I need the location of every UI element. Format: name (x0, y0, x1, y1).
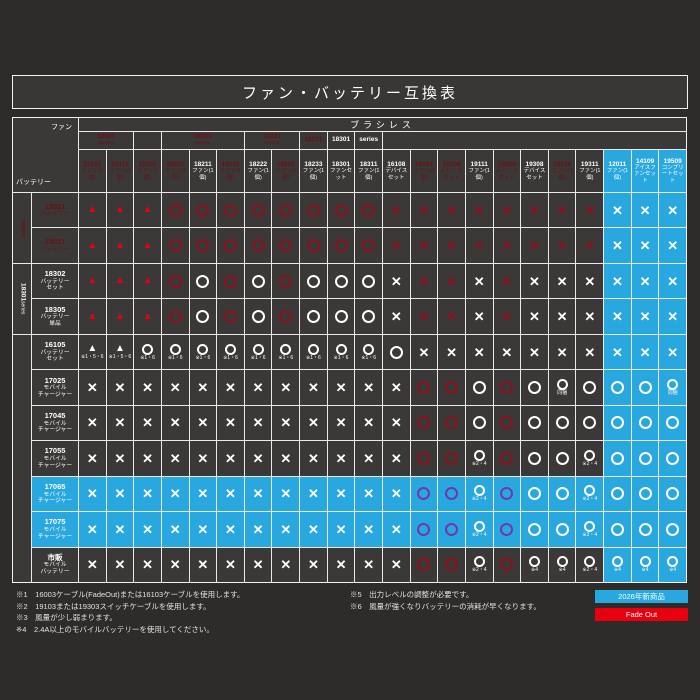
data-cell: ✕ (604, 193, 631, 227)
data-cell: ※2・4 (576, 512, 603, 546)
triangle-mark: ▲ (143, 205, 153, 215)
data-cell (604, 441, 631, 475)
data-cell: ✕ (411, 264, 438, 298)
data-cell: ✕ (438, 299, 465, 333)
cross-mark: ✕ (501, 310, 512, 323)
data-cell: ✕ (328, 512, 355, 546)
row-header-16105: 16105バッテリーセット (32, 335, 78, 369)
data-cell: ✕ (134, 512, 161, 546)
data-cell: ✕ (632, 299, 659, 333)
column-header-19208: 19208デバイスセット (494, 150, 521, 192)
data-cell: ✕ (466, 264, 493, 298)
data-cell (521, 441, 548, 475)
fan-axis-label: ファン (51, 122, 72, 132)
data-cell: ▲ (79, 299, 106, 333)
data-cell: ※4 (604, 548, 631, 582)
data-cell: ✕ (79, 548, 106, 582)
data-cell: ✕ (576, 299, 603, 333)
triangle-mark: ▲ (87, 205, 97, 215)
data-cell: ✕ (494, 335, 521, 369)
circle-mark (308, 344, 319, 355)
data-cell (190, 228, 217, 262)
cross-mark: ✕ (612, 310, 623, 323)
cross-mark: ✕ (253, 487, 264, 500)
data-cell: ✕ (383, 406, 410, 440)
cross-mark: ✕ (584, 346, 595, 359)
data-cell: ※1・6 (245, 335, 272, 369)
data-cell: ✕ (107, 406, 134, 440)
cell-note: ※4 (669, 568, 676, 573)
column-name: ファン(1個) (163, 168, 188, 181)
circle-mark (611, 452, 624, 465)
circle-mark (584, 556, 595, 567)
data-cell: ✕ (355, 441, 382, 475)
data-cell: ✕ (604, 228, 631, 262)
cross-mark: ✕ (391, 239, 402, 252)
triangle-mark: ▲ (87, 312, 97, 322)
column-name: デバイスセット (495, 168, 520, 181)
cross-mark: ✕ (529, 204, 540, 217)
cross-mark: ✕ (170, 381, 181, 394)
column-name: ファン(1個) (135, 168, 160, 181)
triangle-mark: ▲ (115, 205, 125, 215)
data-cell (300, 264, 327, 298)
data-cell: ※1・6 (300, 335, 327, 369)
data-cell (494, 477, 521, 511)
circle-mark (500, 558, 513, 571)
circle-mark (666, 523, 679, 536)
cross-mark: ✕ (197, 523, 208, 536)
cell-note: ※1・6 (140, 356, 155, 361)
data-cell: ✕ (494, 228, 521, 262)
data-cell: ✕ (300, 441, 327, 475)
cross-mark: ✕ (557, 275, 568, 288)
circle-mark (611, 487, 624, 500)
data-cell (190, 299, 217, 333)
circle-mark (363, 344, 374, 355)
cross-mark: ✕ (225, 381, 236, 394)
cross-mark: ✕ (418, 310, 429, 323)
data-cell: ✕ (604, 299, 631, 333)
circle-mark (474, 521, 485, 532)
page-title: ファン・バッテリー互換表 (12, 75, 688, 109)
data-cell: ✕ (79, 477, 106, 511)
data-cell: ✕ (494, 264, 521, 298)
data-cell (549, 441, 576, 475)
data-cell: ※2・4 (576, 477, 603, 511)
circle-mark (473, 381, 486, 394)
data-cell: ※1・6 (190, 335, 217, 369)
cross-mark: ✕ (308, 523, 319, 536)
circle-mark (556, 416, 569, 429)
row-header-市販: 市販モバイルバッテリー (32, 548, 78, 582)
cross-mark: ✕ (391, 381, 402, 394)
column-header-19311: 19311ファン(1個) (576, 150, 603, 192)
cross-mark: ✕ (391, 204, 402, 217)
battery-series-strip: series (13, 193, 31, 263)
cell-note: ※1・6 (168, 356, 183, 361)
data-cell (328, 299, 355, 333)
cross-mark: ✕ (363, 416, 374, 429)
circle-mark (142, 344, 153, 355)
data-cell (494, 441, 521, 475)
data-cell: ✕ (355, 406, 382, 440)
cross-mark: ✕ (87, 416, 98, 429)
circle-mark (335, 275, 348, 288)
cross-mark: ✕ (142, 487, 153, 500)
circle-mark (307, 239, 320, 252)
circle-mark (335, 204, 348, 217)
circle-mark (639, 487, 652, 500)
circle-mark (500, 381, 513, 394)
circle-mark (474, 556, 485, 567)
cell-note: ※1・6 (278, 356, 293, 361)
footnote: ※4 2.4A以上のモバイルバッテリーを使用してください。 (16, 624, 346, 636)
compatibility-table: ファン バッテリー ブラシレス 12001series18201series18… (12, 117, 687, 583)
cross-mark: ✕ (446, 275, 457, 288)
data-cell: ✕ (272, 477, 299, 511)
column-header-18221: 18221ファン(1個) (217, 150, 244, 192)
circle-mark (362, 239, 375, 252)
data-cell (632, 406, 659, 440)
row-code: 12021 (45, 203, 66, 212)
data-cell: ✕ (355, 512, 382, 546)
cross-mark: ✕ (225, 558, 236, 571)
data-cell: ✕ (217, 477, 244, 511)
row-code: 13021 (45, 238, 66, 247)
column-header-18222: 18222ファン(1個) (245, 150, 272, 192)
data-cell: ✕ (632, 228, 659, 262)
circle-mark (390, 346, 403, 359)
data-cell: ✕ (466, 193, 493, 227)
data-cell: ✕ (107, 370, 134, 404)
circle-mark (224, 310, 237, 323)
data-cell: ✕ (328, 548, 355, 582)
circle-mark (307, 275, 320, 288)
row-code: 17055 (45, 447, 66, 456)
data-cell: ✕ (521, 299, 548, 333)
cross-mark: ✕ (253, 558, 264, 571)
circle-mark (224, 239, 237, 252)
data-cell: ✕ (576, 335, 603, 369)
circle-mark (445, 381, 458, 394)
data-cell (190, 193, 217, 227)
cross-mark: ✕ (640, 310, 651, 323)
data-cell: ✕ (576, 264, 603, 298)
cross-mark: ✕ (446, 346, 457, 359)
data-cell: ✕ (355, 548, 382, 582)
footnotes-right: ※5 出力レベルの調整が必要です。※6 風量が強くなりバッテリーの消耗が早くなり… (350, 589, 580, 612)
row-header-17025: 17025モバイルチャージャー (32, 370, 78, 404)
triangle-mark: ▲ (115, 344, 125, 354)
data-cell: ※1・6 (328, 335, 355, 369)
data-cell (245, 193, 272, 227)
cross-mark: ✕ (418, 204, 429, 217)
battery-series-text: series (20, 301, 25, 314)
cell-note: 同梱 (668, 391, 678, 396)
data-cell: ▲ (107, 299, 134, 333)
cross-mark: ✕ (584, 204, 595, 217)
column-header-18311: 18311ファン(1個) (355, 150, 382, 192)
cross-mark: ✕ (363, 487, 374, 500)
data-cell: ※1・6 (272, 335, 299, 369)
cross-mark: ✕ (391, 558, 402, 571)
data-cell: ✕ (79, 512, 106, 546)
circle-mark (529, 556, 540, 567)
data-cell (272, 228, 299, 262)
data-cell (438, 548, 465, 582)
data-cell: ✕ (383, 477, 410, 511)
cross-mark: ✕ (529, 275, 540, 288)
row-code: 17075 (45, 518, 66, 527)
cross-mark: ✕ (640, 204, 651, 217)
circle-mark (556, 452, 569, 465)
circle-mark (666, 416, 679, 429)
data-cell: ▲※1・5・6 (107, 335, 134, 369)
circle-mark (640, 556, 651, 567)
cross-mark: ✕ (253, 416, 264, 429)
battery-series-text: series (19, 219, 26, 238)
circle-mark (307, 310, 320, 323)
cross-mark: ✕ (418, 346, 429, 359)
series-group-label: 12001series (79, 132, 133, 149)
data-cell (217, 228, 244, 262)
column-header-18233: 18233ファン(1個) (300, 150, 327, 192)
data-cell (549, 512, 576, 546)
cross-mark: ✕ (363, 381, 374, 394)
cross-mark: ✕ (280, 487, 291, 500)
data-cell: ▲ (134, 228, 161, 262)
data-cell: ✕ (466, 228, 493, 262)
data-cell (217, 264, 244, 298)
cross-mark: ✕ (114, 452, 125, 465)
series-group-text: series (99, 141, 114, 147)
triangle-mark: ▲ (87, 276, 97, 286)
column-name: ファン(1個) (80, 168, 105, 181)
data-cell (300, 228, 327, 262)
row-name-line: モバイル (43, 527, 66, 534)
data-cell (576, 370, 603, 404)
data-cell: ✕ (79, 441, 106, 475)
page-title-text: ファン・バッテリー互換表 (242, 82, 458, 103)
row-code: 18305 (45, 306, 66, 315)
cross-mark: ✕ (336, 452, 347, 465)
data-cell: ▲ (134, 264, 161, 298)
group-diagonal (383, 132, 686, 149)
data-cell: ✕ (272, 370, 299, 404)
triangle-mark: ▲ (87, 344, 97, 354)
cross-mark: ✕ (418, 239, 429, 252)
data-cell (604, 477, 631, 511)
data-cell: ✕ (659, 335, 686, 369)
cross-mark: ✕ (391, 487, 402, 500)
battery-strip-diagonal (13, 335, 31, 582)
row-name-line: バッテリー (41, 211, 70, 218)
cross-mark: ✕ (114, 523, 125, 536)
circle-mark (445, 523, 458, 536)
cross-mark: ✕ (474, 310, 485, 323)
data-cell: ✕ (521, 228, 548, 262)
cross-mark: ✕ (529, 310, 540, 323)
cross-mark: ✕ (280, 416, 291, 429)
data-cell: ▲ (107, 228, 134, 262)
data-cell: ▲ (79, 228, 106, 262)
data-cell: ✕ (272, 441, 299, 475)
data-cell: ✕ (79, 370, 106, 404)
cross-mark: ✕ (114, 487, 125, 500)
data-cell: ✕ (245, 512, 272, 546)
data-cell (355, 193, 382, 227)
circle-mark (500, 416, 513, 429)
data-cell: 同梱 (549, 370, 576, 404)
cross-mark: ✕ (640, 275, 651, 288)
row-name-line: チャージャー (38, 534, 72, 541)
circle-mark (417, 558, 430, 571)
cell-note: ※2・4 (472, 462, 487, 467)
circle-mark (445, 452, 458, 465)
footnote: ※1 16003ケーブル(FadeOut)または16103ケーブルを使用します。 (16, 589, 346, 601)
data-cell: ✕ (162, 548, 189, 582)
column-name: ファン(1個) (108, 168, 133, 181)
data-cell (438, 441, 465, 475)
column-header-19211: 19211ファン(1個) (549, 150, 576, 192)
column-header-19308: 19308デバイスセット (521, 150, 548, 192)
data-cell: ✕ (328, 406, 355, 440)
cross-mark: ✕ (142, 558, 153, 571)
column-name: コンプリートセット (660, 165, 685, 184)
circle-mark (417, 381, 430, 394)
cell-note: ※1・6 (195, 356, 210, 361)
circle-mark (224, 204, 237, 217)
circle-mark (224, 275, 237, 288)
data-cell: ✕ (549, 228, 576, 262)
circle-mark (169, 239, 182, 252)
circle-mark (639, 381, 652, 394)
triangle-mark: ▲ (87, 241, 97, 251)
cell-note: ※2・4 (582, 568, 597, 573)
data-cell (355, 228, 382, 262)
cross-mark: ✕ (170, 416, 181, 429)
row-name-line: チャージャー (38, 498, 72, 505)
data-cell: ✕ (272, 548, 299, 582)
data-cell: ✕ (411, 299, 438, 333)
circle-mark (667, 556, 678, 567)
row-name-line: チャージャー (38, 463, 72, 470)
cross-mark: ✕ (501, 239, 512, 252)
cross-mark: ✕ (474, 275, 485, 288)
cross-mark: ✕ (336, 381, 347, 394)
circle-mark (196, 204, 209, 217)
circle-mark (557, 556, 568, 567)
cross-mark: ✕ (170, 558, 181, 571)
footnotes-left: ※1 16003ケーブル(FadeOut)または16103ケーブルを使用します。… (16, 589, 346, 635)
data-cell: ✕ (190, 441, 217, 475)
cross-mark: ✕ (280, 523, 291, 536)
data-cell: ✕ (521, 335, 548, 369)
data-cell: ✕ (632, 193, 659, 227)
circle-mark (252, 239, 265, 252)
triangle-mark: ▲ (115, 276, 125, 286)
row-code: 17025 (45, 377, 66, 386)
cross-mark: ✕ (557, 204, 568, 217)
circle-mark (335, 310, 348, 323)
column-name: アイスファンセット (633, 165, 658, 184)
data-cell: ✕ (355, 477, 382, 511)
cross-mark: ✕ (142, 523, 153, 536)
cross-mark: ✕ (584, 310, 595, 323)
data-cell (411, 512, 438, 546)
legend-label: Fade Out (626, 610, 657, 619)
data-cell (355, 299, 382, 333)
cross-mark: ✕ (557, 239, 568, 252)
cross-mark: ✕ (336, 416, 347, 429)
triangle-mark: ▲ (143, 241, 153, 251)
circle-mark (280, 344, 291, 355)
cell-note: ※1・5・6 (81, 355, 104, 360)
data-cell (632, 512, 659, 546)
data-cell: ✕ (383, 512, 410, 546)
cross-mark: ✕ (529, 239, 540, 252)
data-cell: ✕ (383, 370, 410, 404)
data-cell: ✕ (217, 441, 244, 475)
data-cell: ✕ (328, 370, 355, 404)
cell-note: ※2・4 (582, 462, 597, 467)
circle-mark (335, 239, 348, 252)
data-cell: ✕ (438, 264, 465, 298)
circle-mark (473, 416, 486, 429)
circle-mark (500, 487, 513, 500)
circle-mark (279, 275, 292, 288)
legend-label: 2026年新商品 (618, 591, 665, 602)
cross-mark: ✕ (253, 523, 264, 536)
data-cell: ※4 (549, 548, 576, 582)
row-header-17055: 17055モバイルチャージャー (32, 441, 78, 475)
circle-mark (196, 275, 209, 288)
data-cell: ✕ (107, 477, 134, 511)
data-cell (411, 406, 438, 440)
data-cell (494, 370, 521, 404)
data-cell: ✕ (162, 406, 189, 440)
data-cell (521, 406, 548, 440)
data-cell: ✕ (190, 406, 217, 440)
data-cell: ✕ (632, 264, 659, 298)
circle-mark (666, 487, 679, 500)
data-cell (383, 335, 410, 369)
data-cell (411, 370, 438, 404)
circle-mark (417, 523, 430, 536)
cross-mark: ✕ (391, 275, 402, 288)
cross-mark: ✕ (308, 487, 319, 500)
circle-mark (169, 310, 182, 323)
data-cell (272, 299, 299, 333)
data-cell (328, 264, 355, 298)
data-cell: ✕ (162, 441, 189, 475)
column-header-16108: 16108デバイスセット (383, 150, 410, 192)
circle-mark (445, 558, 458, 571)
cell-note: ※4 (531, 568, 538, 573)
cross-mark: ✕ (87, 558, 98, 571)
data-cell (217, 193, 244, 227)
cross-mark: ✕ (584, 239, 595, 252)
data-cell: ✕ (300, 406, 327, 440)
cell-note: ※4 (614, 568, 621, 573)
cross-mark: ✕ (667, 275, 678, 288)
cross-mark: ✕ (584, 275, 595, 288)
data-cell (659, 477, 686, 511)
column-name: デバイスセット (384, 168, 409, 181)
circle-mark (417, 452, 430, 465)
row-header-12021: 12021バッテリー (32, 193, 78, 227)
